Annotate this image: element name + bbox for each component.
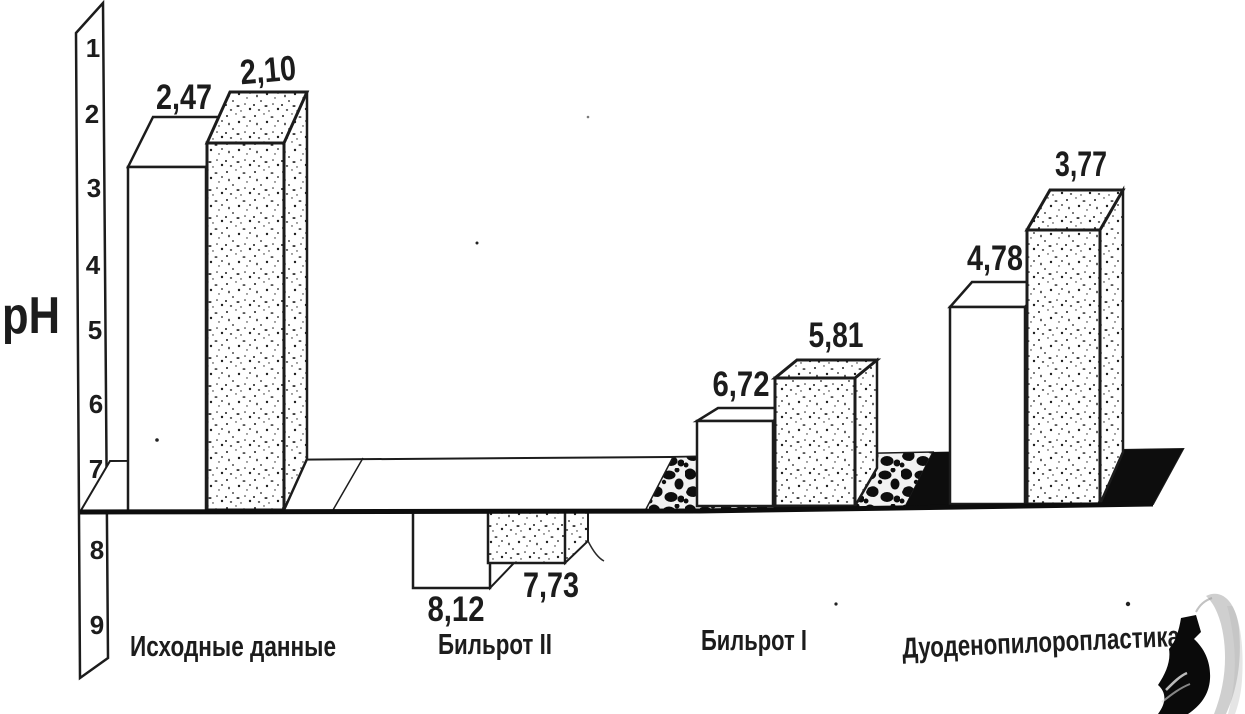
bar-billroth2-white	[413, 511, 490, 588]
tick-label-2: 2	[85, 99, 99, 129]
scanned-ph-bar-chart-page: 1 2 3 4 5 6 7 8 9 pH	[0, 0, 1245, 714]
value-label-billroth2-stippled: 7,73	[523, 566, 579, 605]
bar-billroth1-white	[697, 421, 773, 506]
value-label-duodeno-stippled: 3,77	[1055, 145, 1107, 184]
value-label-billroth2-white: 8,12	[428, 590, 485, 629]
bar-initial-stippled	[207, 143, 284, 510]
scan-speck	[476, 242, 479, 245]
bar-billroth1-stippled	[775, 378, 855, 506]
bar-duodeno-stippled	[1027, 230, 1100, 504]
category-label-billroth-2: Бильрот II	[438, 629, 552, 661]
tick-label-1: 1	[86, 33, 100, 63]
bar-billroth2-stippled	[488, 511, 565, 563]
y-axis-title: pH	[2, 287, 60, 345]
scan-speck	[587, 116, 590, 119]
scan-speck	[834, 602, 837, 605]
value-label-initial-stippled: 2,10	[238, 49, 297, 93]
category-label-initial-data: Исходные данные	[130, 631, 336, 663]
tick-label-6: 6	[89, 389, 103, 419]
scan-speck	[155, 438, 159, 442]
scan-speck	[1126, 602, 1130, 606]
tick-label-8: 8	[90, 535, 104, 565]
category-label-billroth-1: Бильрот I	[701, 625, 807, 657]
bar-duodeno-stippled-side	[1100, 190, 1123, 504]
tick-label-5: 5	[88, 315, 102, 345]
tick-label-3: 3	[87, 173, 101, 203]
tick-label-4: 4	[86, 250, 101, 280]
value-label-duodeno-white: 4,78	[967, 239, 1023, 278]
bar-group-initial-data	[128, 92, 307, 511]
value-label-billroth1-stippled: 5,81	[809, 316, 864, 355]
bar-initial-stippled-side	[284, 92, 307, 510]
value-label-billroth1-white: 6,72	[713, 365, 770, 404]
bar-duodeno-white	[950, 307, 1025, 504]
bar-initial-white	[128, 167, 206, 511]
tick-label-7: 7	[89, 454, 103, 484]
tick-label-9: 9	[90, 610, 104, 640]
ph-bar-chart-figure: 1 2 3 4 5 6 7 8 9 pH	[0, 0, 1245, 714]
value-label-initial-white: 2,47	[156, 78, 212, 117]
